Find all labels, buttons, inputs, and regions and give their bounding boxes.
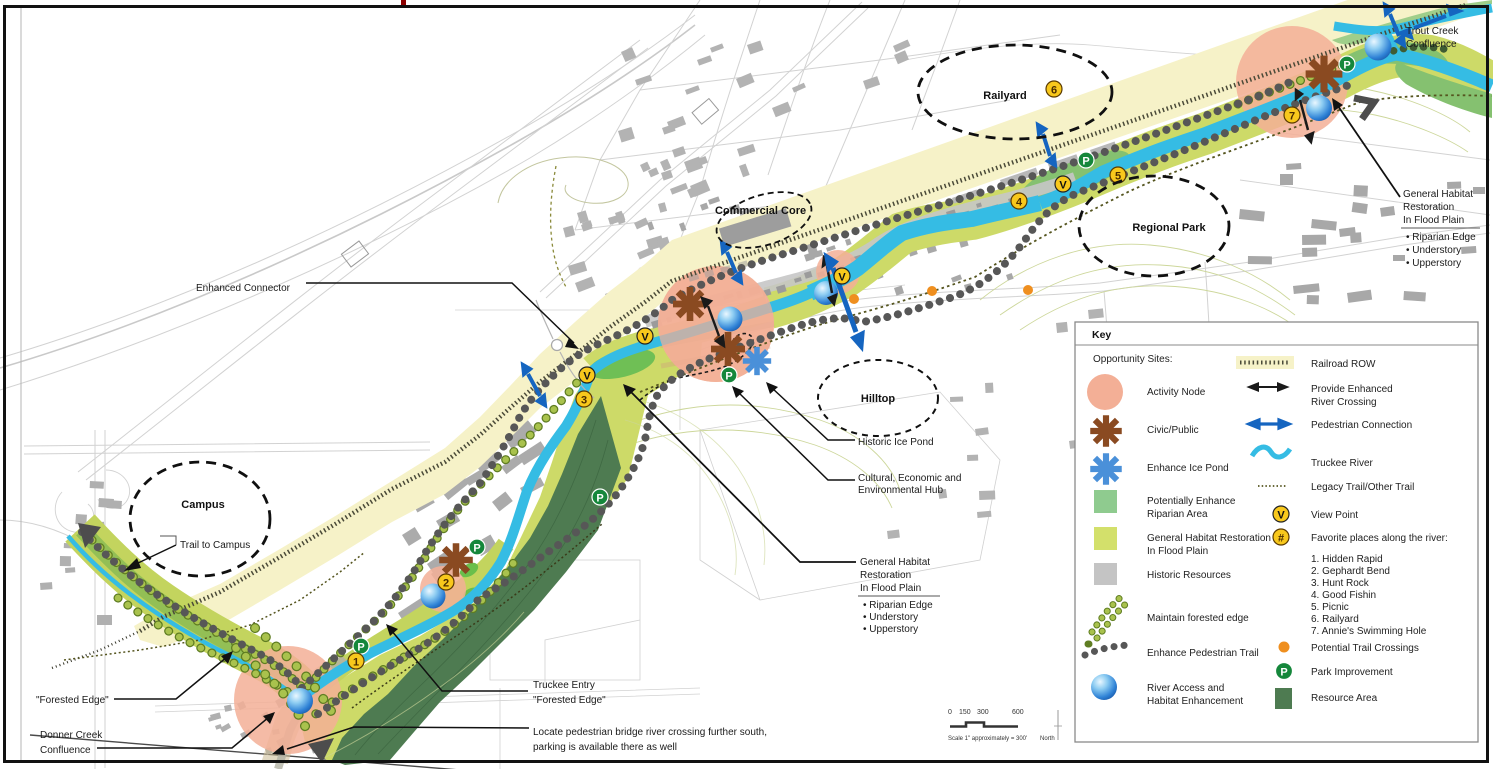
svg-text:Habitat Enhancement: Habitat Enhancement (1147, 696, 1243, 707)
svg-text:• Understory: • Understory (863, 612, 918, 623)
svg-text:P: P (473, 543, 480, 555)
svg-text:1: 1 (353, 657, 359, 669)
svg-text:P: P (357, 642, 364, 654)
svg-text:Regional Park: Regional Park (1132, 222, 1206, 234)
svg-text:General Habitat: General Habitat (860, 557, 930, 568)
svg-text:River Access and: River Access and (1147, 683, 1224, 694)
svg-text:300: 300 (977, 709, 989, 716)
svg-text:Donner Creek: Donner Creek (40, 730, 103, 741)
svg-text:P: P (725, 371, 732, 383)
svg-text:Enhance Ice Pond: Enhance Ice Pond (1147, 463, 1229, 474)
svg-text:Railroad ROW: Railroad ROW (1311, 359, 1376, 370)
svg-text:• Upperstory: • Upperstory (1406, 258, 1461, 269)
svg-text:V: V (1059, 180, 1067, 192)
svg-text:150: 150 (959, 709, 971, 716)
svg-text:P: P (1082, 156, 1089, 168)
svg-text:• Riparian Edge: • Riparian Edge (1406, 232, 1476, 243)
svg-text:Commercial Core: Commercial Core (715, 205, 806, 217)
svg-text:"Forested Edge": "Forested Edge" (533, 695, 606, 706)
svg-text:Key: Key (1092, 329, 1111, 341)
svg-text:In Flood Plain: In Flood Plain (1403, 215, 1464, 226)
svg-text:2: 2 (443, 578, 449, 590)
svg-text:• Understory: • Understory (1406, 245, 1461, 256)
svg-text:1. Hidden Rapid: 1. Hidden Rapid (1311, 554, 1383, 565)
svg-text:"Forested Edge": "Forested Edge" (36, 695, 109, 706)
svg-text:Opportunity Sites:: Opportunity Sites: (1093, 354, 1172, 365)
svg-text:Environmental Hub: Environmental Hub (858, 485, 943, 496)
svg-text:6: 6 (1051, 85, 1057, 97)
svg-text:Restoration: Restoration (860, 570, 911, 581)
svg-text:View Point: View Point (1311, 510, 1358, 521)
svg-text:Trail to Campus: Trail to Campus (180, 540, 250, 551)
svg-text:7. Annie's Swimming Hole: 7. Annie's Swimming Hole (1311, 626, 1427, 637)
svg-text:Provide Enhanced: Provide Enhanced (1311, 384, 1393, 395)
svg-text:Potential Trail Crossings: Potential Trail Crossings (1311, 643, 1419, 654)
svg-text:Truckee River: Truckee River (1311, 458, 1374, 469)
svg-text:4: 4 (1016, 197, 1023, 209)
svg-text:600: 600 (1012, 709, 1024, 716)
svg-text:Historic Ice Pond: Historic Ice Pond (858, 437, 934, 448)
svg-text:General Habitat: General Habitat (1403, 189, 1473, 200)
svg-text:P: P (1280, 667, 1287, 679)
svg-text:Resource Area: Resource Area (1311, 693, 1378, 704)
svg-text:Enhance Pedestrian Trail: Enhance Pedestrian Trail (1147, 648, 1259, 659)
svg-text:V: V (583, 371, 591, 383)
svg-text:Confluence: Confluence (40, 745, 91, 756)
svg-text:Hilltop: Hilltop (861, 393, 895, 405)
svg-text:Locate pedestrian bridge river: Locate pedestrian bridge river crossing … (533, 727, 767, 738)
svg-text:3: 3 (581, 395, 587, 407)
svg-text:Restoration: Restoration (1403, 202, 1454, 213)
svg-text:Enhanced Connector: Enhanced Connector (196, 283, 291, 294)
svg-text:0: 0 (948, 709, 952, 716)
svg-text:• Riparian Edge: • Riparian Edge (863, 600, 933, 611)
svg-text:V: V (641, 332, 649, 344)
svg-text:• Upperstory: • Upperstory (863, 624, 918, 635)
svg-text:5. Picnic: 5. Picnic (1311, 602, 1349, 613)
svg-text:Campus: Campus (181, 499, 224, 511)
svg-text:Riparian Area: Riparian Area (1147, 509, 1208, 520)
svg-text:4. Good Fishin: 4. Good Fishin (1311, 590, 1376, 601)
svg-text:Historic Resources: Historic Resources (1147, 570, 1231, 581)
svg-text:Civic/Public: Civic/Public (1147, 425, 1199, 436)
svg-text:River Crossing: River Crossing (1311, 397, 1377, 408)
svg-text:Cultural, Economic and: Cultural, Economic and (858, 473, 961, 484)
svg-text:Confluence: Confluence (1406, 39, 1457, 50)
svg-text:In Flood Plain: In Flood Plain (1147, 546, 1208, 557)
svg-text:#: # (1278, 533, 1284, 545)
svg-text:In Flood Plain: In Flood Plain (860, 583, 921, 594)
svg-text:Park Improvement: Park Improvement (1311, 667, 1393, 678)
svg-text:Railyard: Railyard (983, 90, 1026, 102)
svg-text:Legacy Trail/Other Trail: Legacy Trail/Other Trail (1311, 482, 1414, 493)
svg-text:parking is available there as: parking is available there as well (533, 742, 677, 753)
svg-text:P: P (1343, 60, 1350, 72)
svg-text:Trout Creek: Trout Creek (1406, 26, 1459, 37)
svg-text:7: 7 (1289, 111, 1295, 123)
svg-text:Pedestrian Connection: Pedestrian Connection (1311, 420, 1412, 431)
svg-text:Potentially Enhance: Potentially Enhance (1147, 496, 1236, 507)
svg-text:North: North (1040, 736, 1055, 742)
svg-text:Maintain forested edge: Maintain forested edge (1147, 613, 1249, 624)
svg-text:V: V (1277, 510, 1285, 522)
svg-text:Activity Node: Activity Node (1147, 387, 1206, 398)
svg-text:2. Gephardt Bend: 2. Gephardt Bend (1311, 566, 1390, 577)
svg-text:Truckee Entry: Truckee Entry (533, 680, 595, 691)
svg-text:General Habitat Restoration: General Habitat Restoration (1147, 533, 1271, 544)
svg-text:P: P (596, 493, 603, 505)
svg-text:6. Railyard: 6. Railyard (1311, 614, 1359, 625)
svg-text:3. Hunt Rock: 3. Hunt Rock (1311, 578, 1370, 589)
svg-text:Favorite places along the rive: Favorite places along the river: (1311, 533, 1448, 544)
svg-text:V: V (838, 272, 846, 284)
svg-text:Scale 1" approximately = 300': Scale 1" approximately = 300' (948, 736, 1027, 742)
